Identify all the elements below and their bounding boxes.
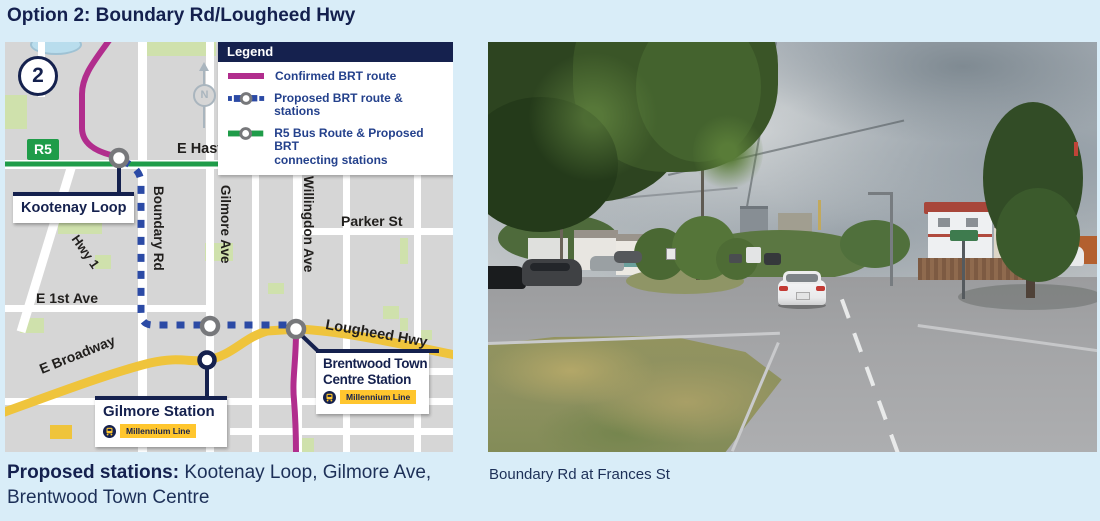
photo-caption: Boundary Rd at Frances St [489,466,670,483]
street-label-parker: Parker St [341,213,402,229]
conifer-tree [996,188,1080,282]
license-plate [796,292,810,300]
millennium-line-row: Millennium Line [103,424,227,438]
crane-pole [818,200,821,230]
parked-car [614,251,642,263]
map-panel: 2 N R5 E Hastings St Boundary Rd Gilmore… [5,42,453,452]
option-number-badge: 2 [18,56,58,96]
proposed-route-dashed [122,161,293,325]
legend-label: R5 Bus Route & Proposed BRT connecting s… [274,126,448,168]
legend-body: Confirmed BRT route Proposed BRT route &… [218,62,453,175]
r5-route-swatch [228,126,265,140]
confirmed-route-north [82,42,111,155]
millennium-line-badge: Millennium Line [120,424,196,438]
page: { "page": {"title": "Option 2: Boundary … [0,0,1100,521]
brentwood-station-label: Brentwood Town Centre Station Millennium… [316,353,429,414]
station-name: Kootenay Loop [21,200,127,216]
legend-label-line2: connecting stations [274,153,387,167]
legend-item-proposed: Proposed BRT route & stations [228,91,448,119]
gilmore-ave-station-marker [202,318,218,334]
station-name-line2: Centre Station [323,372,429,388]
gilmore-skytrain-marker [200,353,215,368]
car-taillight [816,286,825,291]
street-label-e1st: E 1st Ave [36,290,98,306]
station-name: Gilmore Station [103,403,215,420]
lamp-arm [868,192,893,195]
page-title: Option 2: Boundary Rd/Lougheed Hwy [7,5,355,27]
red-marker [1074,142,1078,156]
parked-car [488,266,526,289]
legend-item-confirmed: Confirmed BRT route [228,69,448,84]
sign-pole [962,241,965,299]
millennium-line-row: Millennium Line [323,390,429,404]
legend-title: Legend [218,42,453,62]
brentwood-station-marker [288,321,304,337]
street-label-gilmore: Gilmore Ave [218,185,233,264]
road-sign [666,248,676,260]
house-window [938,218,950,227]
distant-van [746,247,761,263]
car-rear-window [786,274,818,282]
distant-car [764,253,781,265]
legend-label: Confirmed BRT route [275,69,396,84]
legend-item-r5: R5 Bus Route & Proposed BRT connecting s… [228,126,448,168]
car-windows [530,263,570,271]
white-car [776,270,828,310]
r5-route-badge: R5 [27,139,59,160]
station-name-line1: Brentwood Town [323,356,429,372]
tree-canopy-edge [693,112,763,192]
millennium-line-badge: Millennium Line [340,390,416,404]
legend-label: Proposed BRT route & stations [274,91,448,119]
gilmore-station-label: Gilmore Station Millennium Line [95,396,227,447]
train-icon [323,391,336,404]
confirmed-route-south [293,332,296,452]
confirmed-route-swatch [228,69,266,83]
car-taillight [779,286,788,291]
proposed-stations-lead: Proposed stations: [7,462,179,483]
proposed-stations-text: Proposed stations: Kootenay Loop, Gilmor… [7,460,485,510]
compass-north-icon: N [193,84,216,107]
street-label-boundary: Boundary Rd [151,186,166,271]
street-photo [488,42,1097,452]
map-legend: Legend Confirmed BRT route Proposed BRT … [218,42,453,175]
treeline [840,220,910,268]
distant-car [729,254,742,263]
proposed-route-swatch [228,91,265,105]
kootenay-station-marker [111,150,127,166]
street-label-willingdon: Willingdon Ave [301,176,316,272]
lamp-pole [890,194,893,286]
train-icon [103,425,116,438]
house-window [966,218,978,227]
tree-canopy-highlight [518,52,668,182]
legend-label-line1: R5 Bus Route & Proposed BRT [274,126,423,154]
street-name-sign [950,230,978,241]
kootenay-loop-label: Kootenay Loop [13,192,134,223]
